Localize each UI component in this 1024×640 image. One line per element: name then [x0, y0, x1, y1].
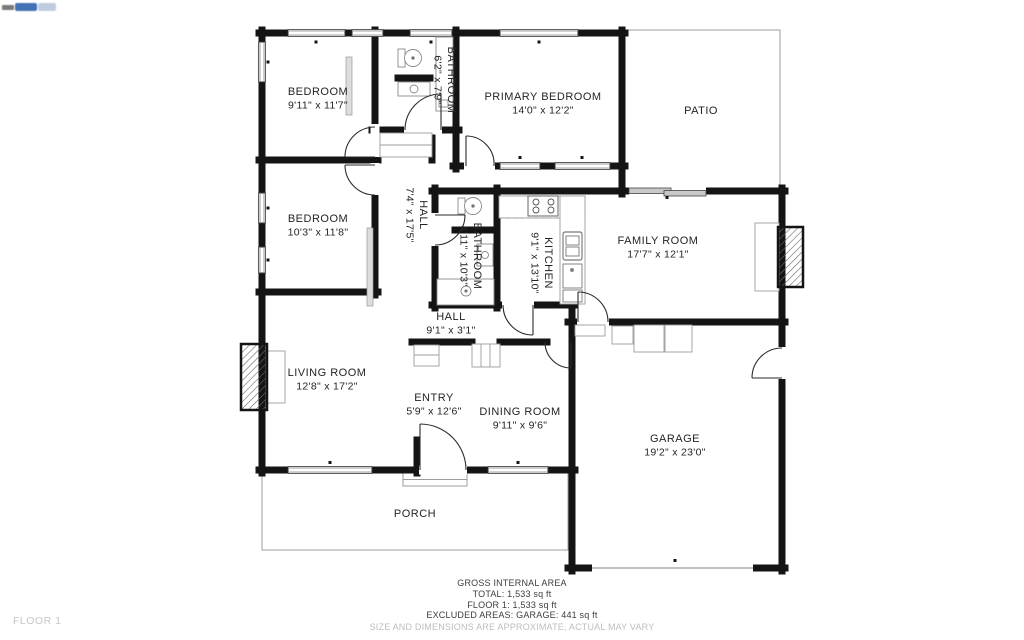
- entry-closet: [472, 344, 500, 367]
- stove-icon: [528, 196, 558, 216]
- logo-mark-lightblue: [38, 3, 56, 11]
- washer-icon: [634, 325, 664, 352]
- room-label-bathroom: BATHROOM6'2" x 7'9": [432, 47, 458, 114]
- window: [500, 163, 540, 170]
- hall-closet: [380, 133, 432, 157]
- window: [555, 163, 610, 170]
- room-label-entry: ENTRY5'9" x 12'6": [406, 392, 461, 418]
- total-area-value: TOTAL: 1,533 sq ft: [0, 589, 1024, 600]
- toilet-icon: [398, 49, 422, 67]
- closet-sliding-door: [367, 228, 373, 306]
- room-label-bedroom: BEDROOM9'11" x 11'7": [288, 86, 348, 112]
- room-label-kitchen: KITCHEN9'1" x 13'10": [529, 232, 555, 294]
- excluded-areas-value: EXCLUDED AREAS: GARAGE: 441 sq ft: [0, 610, 1024, 621]
- window: [259, 42, 266, 82]
- floorplan-page: BEDROOM9'11" x 11'7"BATHROOM6'2" x 7'9"P…: [0, 0, 1024, 640]
- window: [500, 30, 578, 37]
- room-label-living-room: LIVING ROOM12'8" x 17'2": [288, 367, 367, 393]
- window: [410, 30, 452, 37]
- window: [259, 247, 266, 273]
- dishwasher-icon: [563, 264, 582, 288]
- sink-vanity-icon: [398, 82, 430, 96]
- mls-watermark-logo: [1, 1, 59, 14]
- living-room-fireplace: [241, 344, 285, 410]
- window: [352, 30, 383, 37]
- toilet-icon: [458, 198, 482, 215]
- floor-label: FLOOR 1: [13, 615, 61, 627]
- room-label-bedroom: BEDROOM10'3" x 11'8": [288, 213, 349, 239]
- gross-internal-area-label: GROSS INTERNAL AREA: [0, 578, 1024, 589]
- hall-closet-small: [414, 345, 439, 366]
- room-label-bathroom: BATHROOM4'11" x 10'3": [458, 223, 484, 290]
- size-disclaimer: SIZE AND DIMENSIONS ARE APPROXIMATE, ACT…: [0, 622, 1024, 633]
- floorplan-svg: BEDROOM9'11" x 11'7"BATHROOM6'2" x 7'9"P…: [0, 0, 1024, 640]
- window: [259, 193, 266, 223]
- room-label-garage: GARAGE19'2" x 23'0": [644, 433, 706, 459]
- window: [488, 467, 548, 474]
- kitchen-sink-icon: [563, 232, 582, 260]
- logo-mark-gray: [2, 5, 14, 10]
- area-summary: GROSS INTERNAL AREA TOTAL: 1,533 sq ft F…: [0, 578, 1024, 633]
- family-room-fireplace: [755, 223, 803, 291]
- floor1-area-value: FLOOR 1: 1,533 sq ft: [0, 600, 1024, 611]
- entry-steps: [403, 473, 467, 486]
- dryer-icon: [665, 325, 692, 352]
- window: [288, 30, 345, 37]
- room-label-family-room: FAMILY ROOM17'7" x 12'1": [618, 235, 699, 261]
- room-label-patio: PATIO: [684, 105, 718, 117]
- room-label-porch: PORCH: [394, 508, 436, 520]
- logo-mark-blue: [15, 3, 37, 11]
- window: [288, 467, 372, 474]
